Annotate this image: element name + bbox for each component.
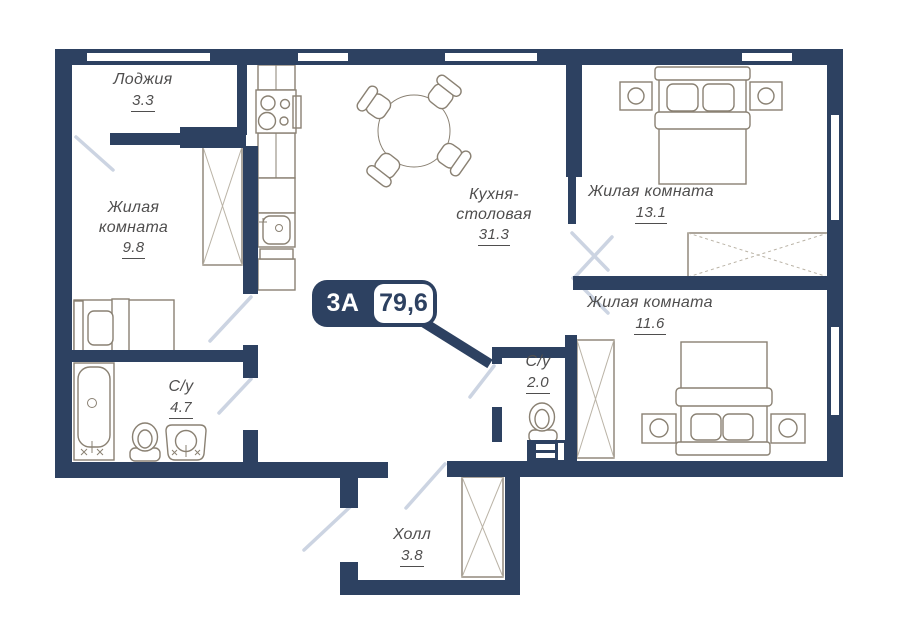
wall-segment — [568, 177, 576, 224]
toilet-icon — [130, 423, 160, 461]
room-name: Жилая комната — [585, 293, 715, 313]
wall-segment — [492, 407, 502, 442]
wardrobe-icon — [688, 233, 828, 277]
door-swing — [470, 366, 494, 397]
room-label-kitchen-dining: Кухня-столовая 31.3 — [433, 185, 555, 246]
door-swing — [219, 379, 251, 413]
wall-segment — [55, 49, 72, 478]
door-swing — [406, 464, 445, 508]
window — [298, 53, 348, 61]
bathtub-icon — [74, 363, 114, 460]
apartment-type: 3А — [312, 289, 374, 318]
window — [831, 115, 839, 220]
room-area: 13.1 — [586, 204, 716, 224]
apartment-badge: 3А 79,6 — [312, 280, 437, 327]
wall-segment — [243, 430, 258, 477]
radiator-icon — [536, 444, 555, 450]
window — [445, 53, 537, 61]
wall-segment — [447, 461, 843, 477]
room-label-bathroom-1: С/у 4.7 — [141, 377, 221, 419]
room-name: Жилая комната — [71, 198, 196, 237]
wall-segment — [110, 133, 185, 145]
wall-segment — [55, 462, 388, 478]
room-label-living-1: Жилая комната 9.8 — [71, 198, 196, 259]
nightstand-icon — [642, 414, 676, 443]
wall-segment — [237, 65, 247, 135]
room-label-living-3: Жилая комната 11.6 — [585, 293, 715, 335]
room-name: Жилая комната — [586, 182, 716, 202]
room-area: 3.8 — [362, 547, 462, 567]
apartment-total-area: 79,6 — [374, 284, 433, 323]
door-swing — [572, 233, 608, 270]
wall-segment — [340, 477, 358, 508]
room-label-hall: Холл 3.8 — [362, 525, 462, 567]
room-name: Кухня-столовая — [433, 185, 555, 224]
room-name: Лоджия — [83, 70, 203, 90]
wall-segment — [72, 350, 243, 362]
room-area: 9.8 — [71, 239, 196, 259]
door-swing — [76, 137, 113, 170]
room-area: 4.7 — [141, 399, 221, 419]
wardrobe-icon — [577, 340, 614, 458]
floor-plan: Лоджия 3.3 Жилая комната 9.8 Кухня-столо… — [0, 0, 899, 631]
room-area: 31.3 — [433, 226, 555, 246]
wall-segment — [340, 580, 520, 595]
wall-segment — [243, 146, 258, 294]
double-bed-icon — [676, 342, 772, 455]
room-label-living-2: Жилая комната 13.1 — [586, 182, 716, 224]
nightstand-icon — [750, 82, 782, 110]
toilet-icon — [529, 403, 557, 442]
wardrobe-icon — [203, 147, 242, 265]
nightstand-icon — [771, 414, 805, 443]
wall-segment — [505, 477, 520, 595]
radiator-icon — [558, 443, 564, 460]
wall-segment — [243, 345, 258, 378]
room-name: С/у — [141, 377, 221, 397]
dining-table-icon — [355, 73, 473, 189]
room-name: С/у — [506, 352, 570, 372]
room-area: 11.6 — [585, 315, 715, 335]
washbasin-icon — [166, 425, 206, 460]
stove-icon — [256, 90, 301, 133]
window — [742, 53, 792, 61]
nightstand-icon — [620, 82, 652, 110]
room-label-bathroom-2: С/у 2.0 — [506, 352, 570, 394]
double-bed-icon — [655, 67, 750, 184]
door-swing — [210, 297, 251, 341]
kitchen-sink-icon — [258, 213, 295, 259]
window — [831, 327, 839, 415]
wall-segment — [492, 347, 502, 364]
wall-segment — [180, 127, 246, 148]
room-area: 3.3 — [83, 92, 203, 112]
room-label-loggia: Лоджия 3.3 — [83, 70, 203, 112]
wall-segment — [573, 276, 830, 290]
wardrobe-icon — [462, 477, 503, 577]
room-name: Холл — [362, 525, 462, 545]
radiator-icon — [536, 453, 555, 458]
entrance-door-swing — [304, 507, 350, 550]
window — [87, 53, 210, 61]
wall-segment — [566, 60, 582, 177]
room-area: 2.0 — [506, 374, 570, 394]
